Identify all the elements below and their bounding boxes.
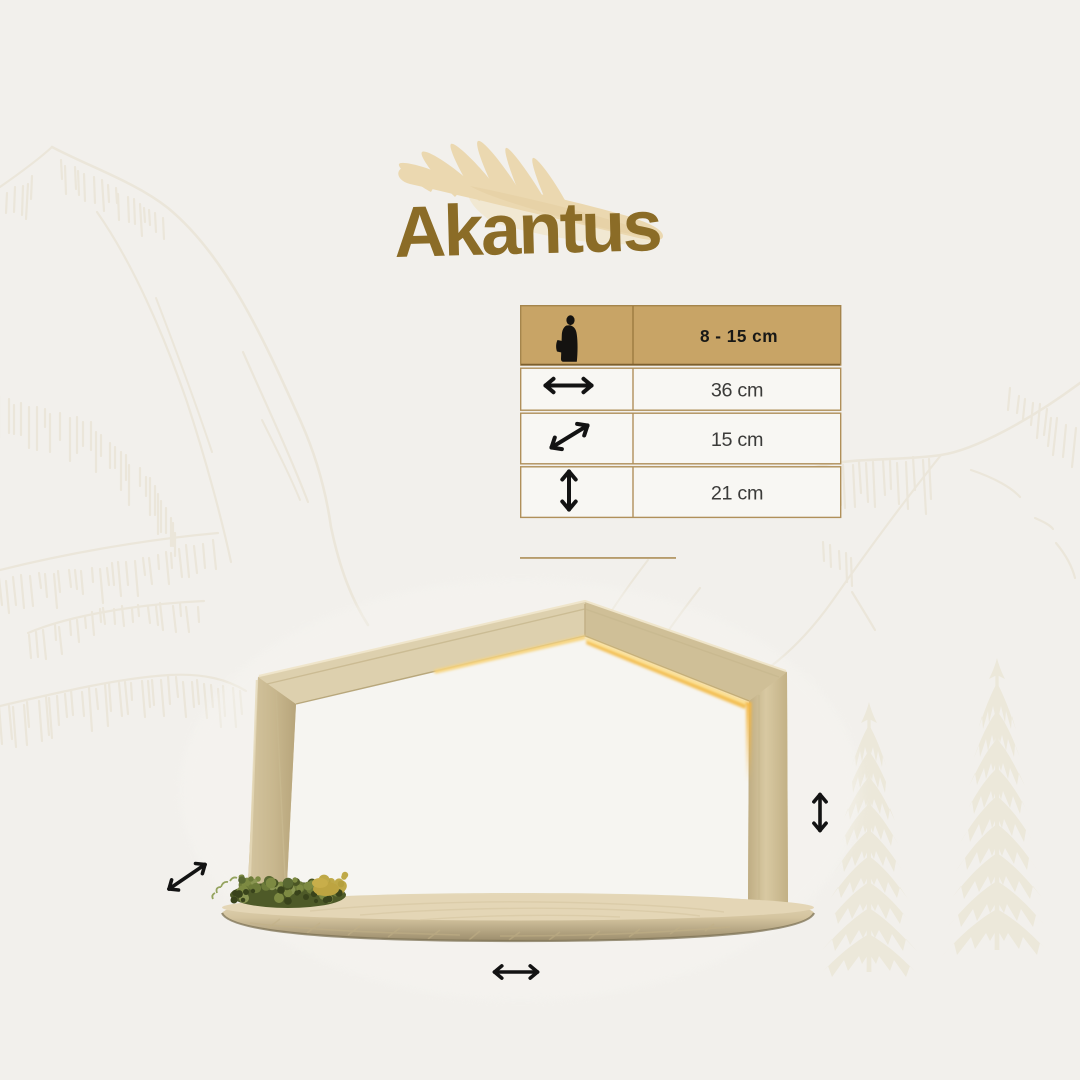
svg-text:15 cm: 15 cm [711,429,763,451]
svg-text:21 cm: 21 cm [711,482,763,504]
svg-text:36 cm: 36 cm [711,380,763,402]
svg-text:Akantus: Akantus [393,186,661,273]
svg-text:8 - 15 cm: 8 - 15 cm [700,326,778,346]
